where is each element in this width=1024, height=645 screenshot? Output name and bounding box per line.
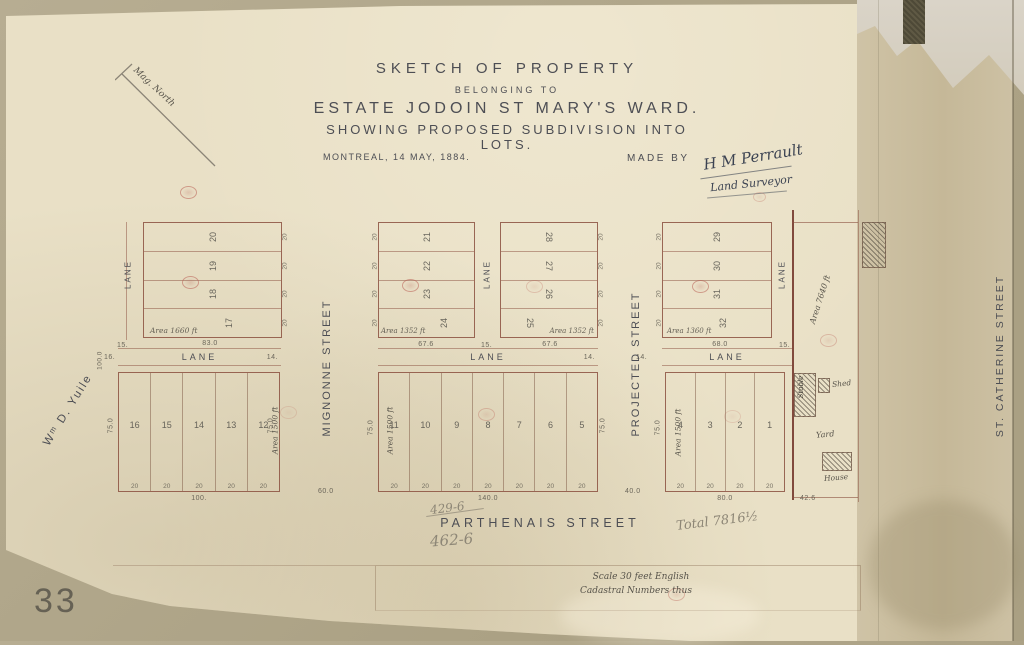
lot-depth-tick: 20 <box>598 320 605 327</box>
lot-depth-tick: 20 <box>282 262 289 269</box>
lot-number: 24 <box>439 318 449 328</box>
lot-number: 30 <box>712 261 722 271</box>
stain <box>868 500 1018 630</box>
lot-number: 23 <box>422 289 432 299</box>
lot-number: 26 <box>544 289 554 299</box>
lot-area-note: Area 1500 ft <box>674 398 683 468</box>
lot-width-tick: 20 <box>163 483 170 490</box>
lot-area-note: Area 1660 ft <box>150 326 198 335</box>
lot-width-tick: 20 <box>736 483 743 490</box>
block-total-dim: 80.0 <box>665 495 785 502</box>
made-by-label: MADE BY <box>627 153 690 164</box>
lot-number: 17 <box>224 318 234 328</box>
sheet-corner-number: 33 <box>34 582 78 621</box>
block-lots-29-32: 2920 3020 3120 3220 Area 1360 ft <box>662 222 772 338</box>
lot-number: 6 <box>548 420 553 430</box>
lot-number: 22 <box>422 261 432 271</box>
lot-depth-tick: 20 <box>372 233 379 240</box>
lot-number: 32 <box>718 318 728 328</box>
block-depth-dim: 75.0 <box>108 411 115 441</box>
lot-area-note: Area 1500 ft <box>271 396 280 466</box>
scale-note-line-1: Scale 30 feet English <box>556 572 726 582</box>
cadastral-stamp <box>182 276 199 289</box>
block-lots-17-20: 2020 1920 1820 1720 Area 1660 ft <box>143 222 282 338</box>
lane-horizontal-mid: LANE 14. <box>378 348 598 366</box>
homestead-north-line <box>792 222 858 223</box>
lane-label: LANE <box>709 352 745 362</box>
block-frontage-dim: 68.0 <box>690 341 750 348</box>
lot-number: 16 <box>130 420 140 430</box>
south-line-extension <box>113 565 375 566</box>
street-parthenais: PARTHENAIS STREET <box>395 516 685 530</box>
block-frontage-dim: 83.0 <box>160 340 260 347</box>
scale-note-line-2: Cadastral Numbers thus <box>548 586 724 596</box>
lane-tick: 14. <box>584 354 595 361</box>
title-date: MONTREAL, 14 MAY, 1884. <box>323 152 470 162</box>
block-frontage-dim: 67.6 <box>520 341 580 348</box>
lane-horizontal-east: LANE 14. <box>662 348 792 366</box>
lot-number: 3 <box>708 420 713 430</box>
lot-depth-tick: 20 <box>656 262 663 269</box>
lot-number: 5 <box>579 420 584 430</box>
dark-edge-fragment <box>903 0 925 44</box>
building-hatched <box>862 222 886 268</box>
lane-mid-label: LANE <box>483 253 492 297</box>
title-line-1: SKETCH OF PROPERTY <box>306 60 708 77</box>
title-line-2: BELONGING TO <box>306 85 708 95</box>
cadastral-stamp <box>280 406 297 419</box>
cadastral-stamp <box>402 279 419 292</box>
lot-number: 29 <box>712 232 722 242</box>
homestead-frontage-dim: 42.6 <box>800 495 816 502</box>
cadastral-stamp <box>724 410 741 423</box>
block-total-dim: 100. <box>118 495 280 502</box>
lot-width-tick: 20 <box>195 483 202 490</box>
yuile-frontage-dim: 100.0 <box>97 345 104 377</box>
lane-label: LANE <box>182 352 218 362</box>
cadastral-stamp <box>692 280 709 293</box>
title-line-4: SHOWING PROPOSED SUBDIVISION INTO LOTS. <box>300 122 714 152</box>
lane-tick: 16. <box>104 354 115 361</box>
lane-label: LANE <box>470 352 506 362</box>
block-lots-5-11: 1120 1020 920 820 720 620 520 <box>378 372 598 492</box>
lot-number: 25 <box>525 318 535 328</box>
lot-width-tick: 20 <box>131 483 138 490</box>
lot-width-tick: 20 <box>766 483 773 490</box>
lane-horizontal-west: LANE 16. 14. <box>118 348 281 366</box>
lot-number: 13 <box>226 420 236 430</box>
st-catherine-line <box>858 210 859 502</box>
street-st-catherine: ST. CATHERINE STREET <box>994 258 1006 454</box>
lot-depth-tick: 20 <box>282 291 289 298</box>
lot-depth-tick: 20 <box>598 233 605 240</box>
lot-area-note: Area 1360 ft <box>667 327 711 335</box>
lot-number: 7 <box>517 420 522 430</box>
lot-number: 19 <box>208 261 218 271</box>
lot-width-tick: 20 <box>228 483 235 490</box>
lot-number: 28 <box>544 232 554 242</box>
lot-depth-tick: 20 <box>656 320 663 327</box>
lot-area-note: Area 1352 ft <box>381 327 425 335</box>
lot-number: 10 <box>420 420 430 430</box>
lot-depth-tick: 20 <box>282 233 289 240</box>
lot-depth-tick: 20 <box>598 291 605 298</box>
house-building <box>822 452 852 471</box>
lot-depth-tick: 20 <box>372 320 379 327</box>
lot-number: 21 <box>422 232 432 242</box>
lot-number: 15 <box>162 420 172 430</box>
lot-number: 31 <box>712 289 722 299</box>
lot-number: 27 <box>544 261 554 271</box>
block-lots-1-4: 420 320 220 120 <box>665 372 785 492</box>
lot-number: 14 <box>194 420 204 430</box>
lot-number: 1 <box>767 420 772 430</box>
lot-width-tick: 20 <box>453 483 460 490</box>
projected-width-dim: 40.0 <box>625 488 641 495</box>
lot-depth-tick: 20 <box>656 233 663 240</box>
block-depth-dim: 75.0 <box>655 413 662 443</box>
cadastral-stamp <box>820 334 837 347</box>
cadastral-stamp <box>753 192 766 202</box>
block-depth-dim: 75.0 <box>600 411 607 441</box>
lot-number: 20 <box>208 232 218 242</box>
lot-area-note: Area 1352 ft <box>550 327 594 335</box>
lot-depth-tick: 20 <box>656 291 663 298</box>
lane-west-label: LANE <box>124 255 133 295</box>
lot-area-note: Area 1500 ft <box>386 396 395 466</box>
cadastral-stamp <box>180 186 197 199</box>
block-depth-dim: 75.0 <box>368 413 375 443</box>
block-lots-21-24: 2120 2220 2320 2420 Area 1352 ft <box>378 222 475 338</box>
lot-number: 9 <box>454 420 459 430</box>
lane-tick: 14. <box>267 354 278 361</box>
lane-east-label: LANE <box>778 253 787 297</box>
mignonne-width-dim: 60.0 <box>318 488 334 495</box>
lot-number: 8 <box>485 420 490 430</box>
cadastral-stamp <box>478 408 495 421</box>
yard-label: Yard <box>816 429 835 440</box>
lot-width-tick: 20 <box>422 483 429 490</box>
property-line <box>792 210 794 500</box>
lot-width-tick: 20 <box>260 483 267 490</box>
lot-depth-tick: 20 <box>598 262 605 269</box>
lot-width-tick: 20 <box>677 483 684 490</box>
block-frontage-dim: 67.6 <box>396 341 456 348</box>
lot-number: 2 <box>737 420 742 430</box>
cadastral-stamp <box>526 280 543 293</box>
lot-depth-tick: 20 <box>372 291 379 298</box>
shed-building <box>818 378 830 393</box>
north-arrow <box>115 62 225 172</box>
lot-width-tick: 20 <box>391 483 398 490</box>
lot-width-tick: 20 <box>578 483 585 490</box>
lot-width-tick: 20 <box>547 483 554 490</box>
pencil-calc-2: 462-6 <box>429 530 473 551</box>
lot-number: 18 <box>208 289 218 299</box>
lot-depth-tick: 20 <box>372 262 379 269</box>
block-total-dim: 140.0 <box>378 495 598 502</box>
block-lots-12-16: 1620 1520 1420 1320 1220 <box>118 372 280 492</box>
lot-width-tick: 20 <box>516 483 523 490</box>
street-mignonne: MIGNONNE STREET <box>321 293 333 443</box>
stable-label: Stable <box>797 367 805 407</box>
street-projected: PROJECTED STREET <box>630 289 642 439</box>
lot-depth-tick: 20 <box>282 320 289 327</box>
lot-width-tick: 20 <box>484 483 491 490</box>
title-line-3: ESTATE JODOIN ST MARY'S WARD. <box>300 100 714 118</box>
block-lots-25-28: 2820 2720 2620 2520 Area 1352 ft <box>500 222 598 338</box>
lot-width-tick: 20 <box>707 483 714 490</box>
